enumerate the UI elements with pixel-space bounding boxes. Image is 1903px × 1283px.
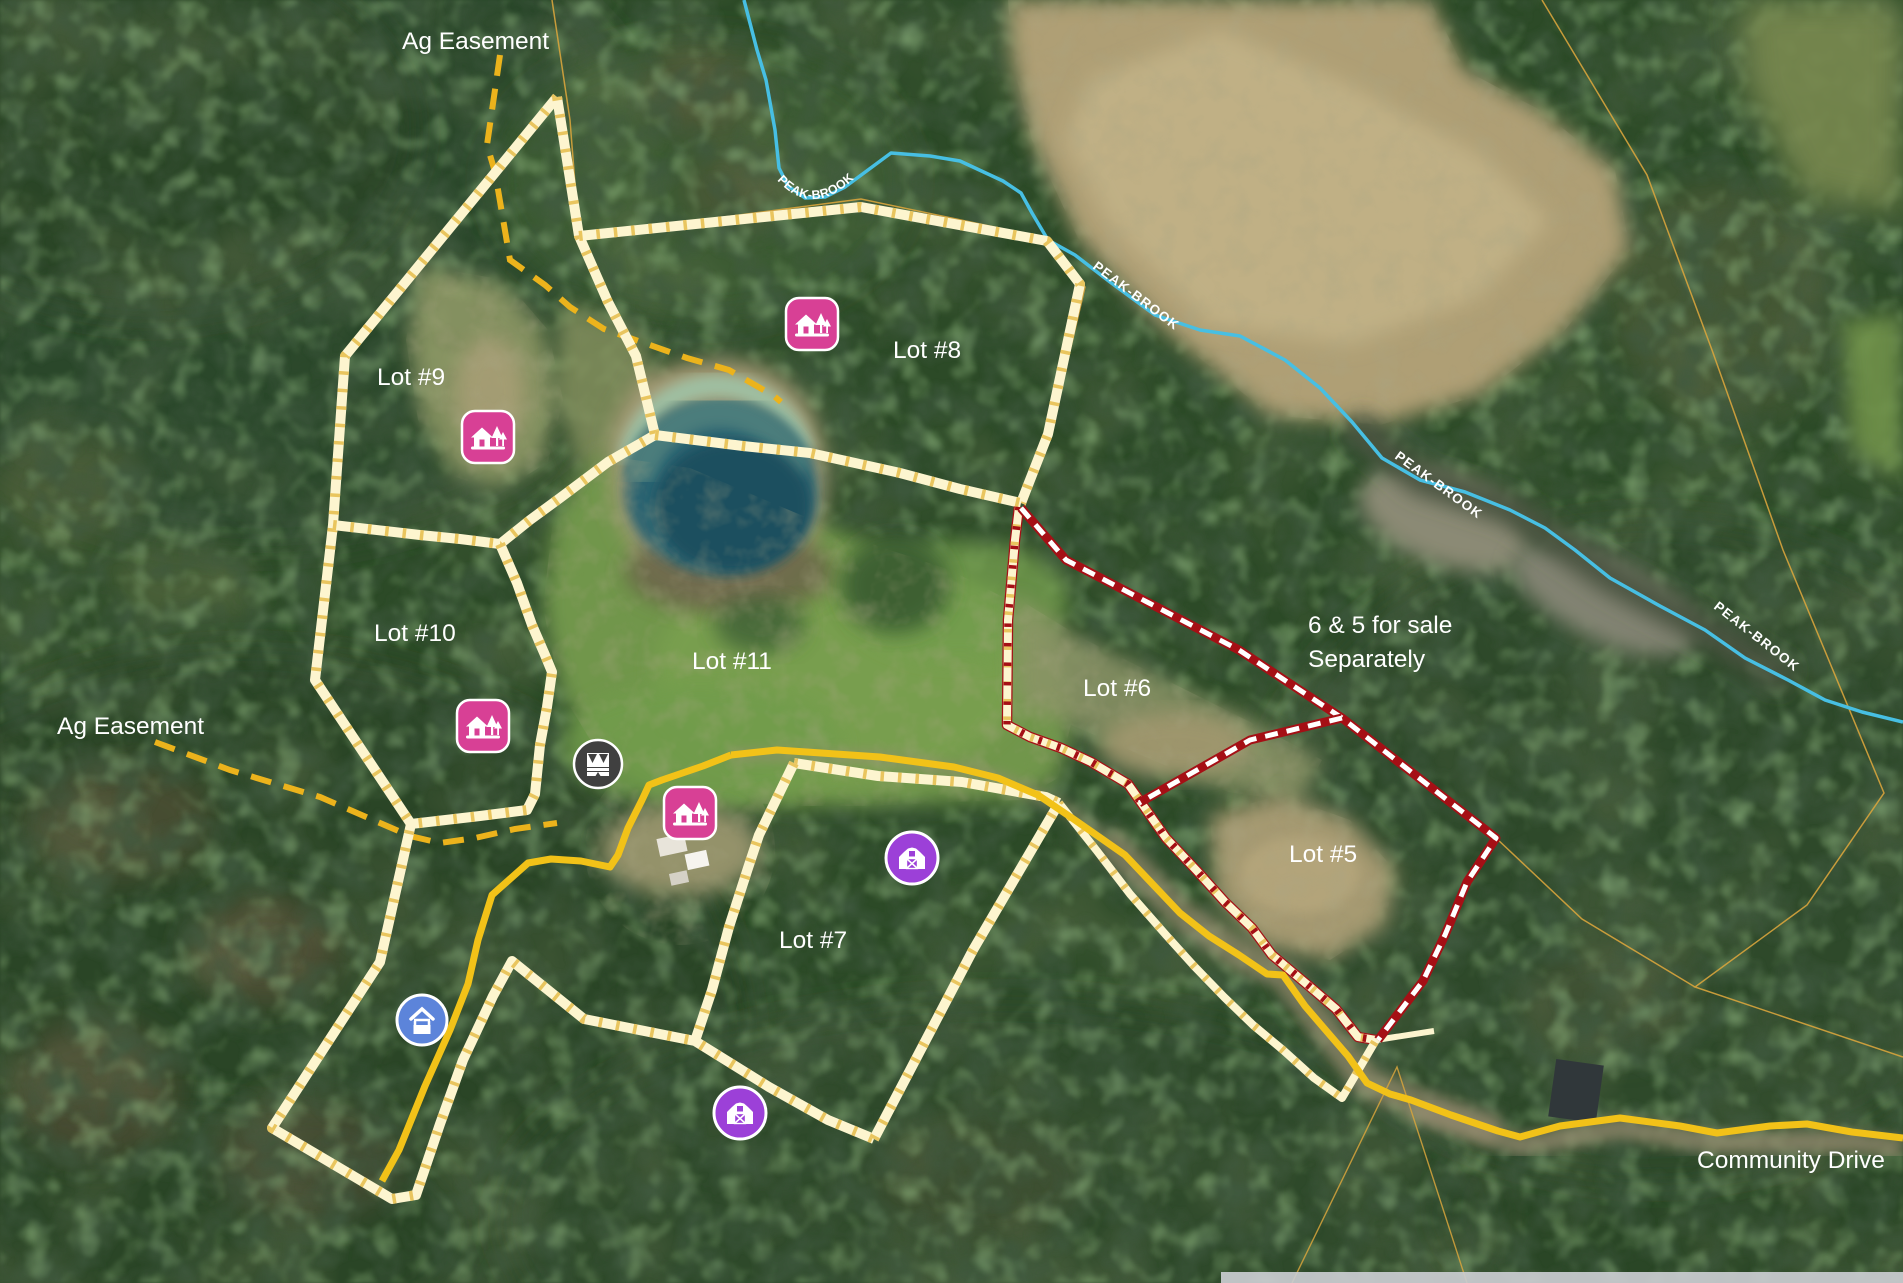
svg-text:Lot #8: Lot #8 [893,337,961,364]
svg-text:Ag Easement: Ag Easement [402,28,549,55]
svg-text:Ag Easement: Ag Easement [57,713,204,740]
svg-text:Lot #10: Lot #10 [374,620,456,647]
svg-text:Separately: Separately [1308,646,1426,673]
svg-text:Lot #5: Lot #5 [1289,841,1357,868]
svg-text:Lot #6: Lot #6 [1083,675,1151,702]
svg-text:Lot #9: Lot #9 [377,364,445,391]
svg-text:Lot #7: Lot #7 [779,927,847,954]
svg-text:Community Drive: Community Drive [1697,1147,1885,1174]
svg-text:6 & 5 for sale: 6 & 5 for sale [1308,612,1452,639]
svg-text:Lot #11: Lot #11 [692,648,772,675]
